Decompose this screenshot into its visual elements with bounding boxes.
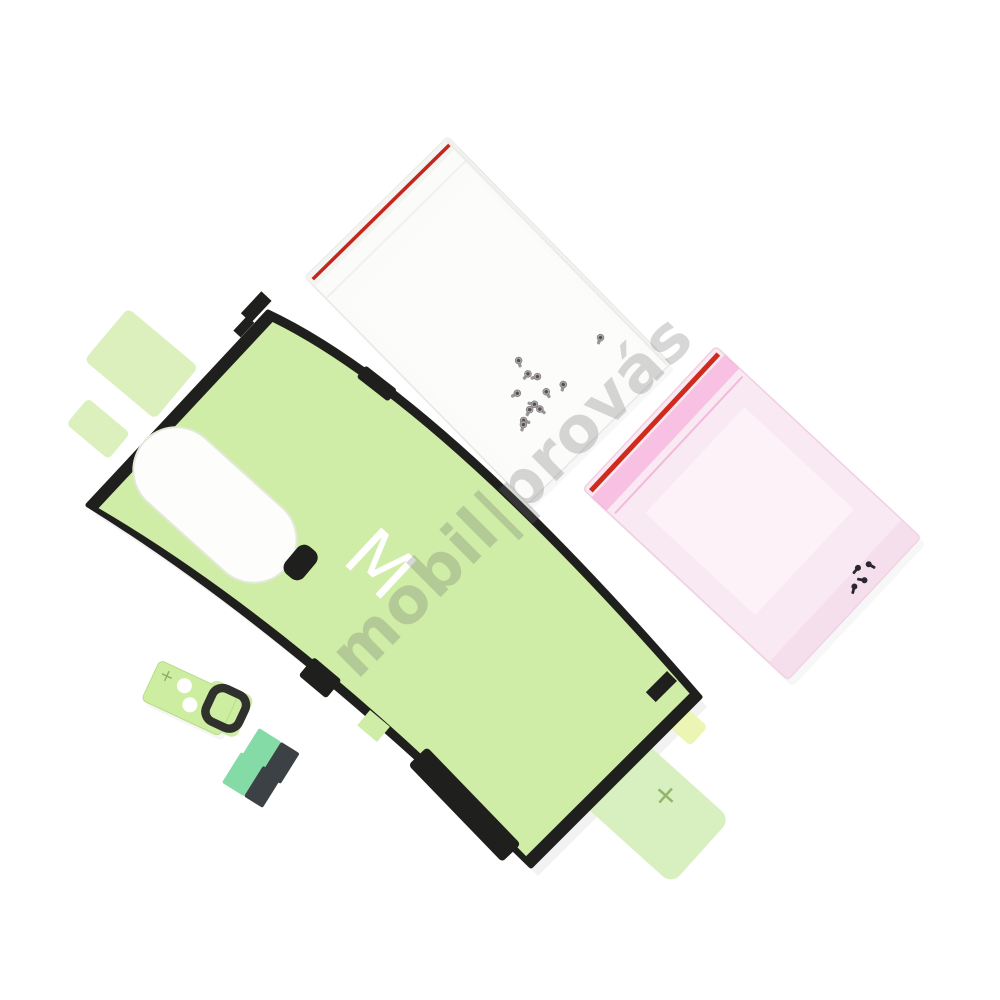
- pull-tab: [66, 398, 130, 459]
- photo-scene: + M +: [0, 0, 1000, 1000]
- sheet-pull-tab-left-small: [66, 398, 130, 459]
- product-photo-canvas: + M +: [0, 0, 1000, 1000]
